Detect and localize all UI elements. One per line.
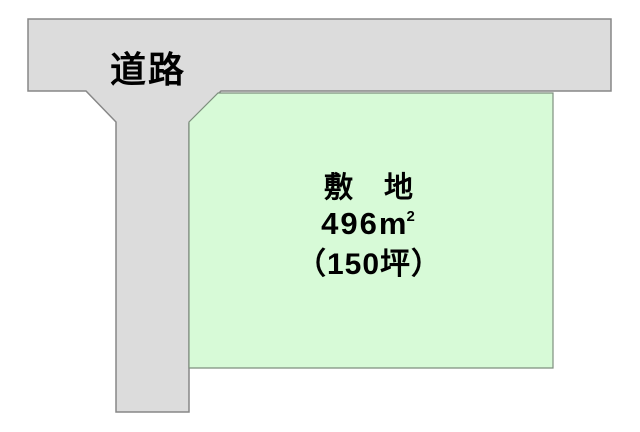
road-label: 道路 [110, 41, 186, 93]
plot-labels: 敷 地 496m2 （150坪） [189, 171, 549, 282]
plot-area-label: 496m2 [189, 206, 549, 247]
plot-area-unit: m [379, 206, 409, 241]
land-plot-diagram: 道路 敷 地 496m2 （150坪） [0, 0, 640, 432]
plot-area-exponent: 2 [406, 199, 414, 234]
plot-area-value: 496 [321, 206, 379, 241]
plot-area-tsubo-label: （150坪） [189, 247, 549, 282]
plot-name-label: 敷 地 [189, 171, 549, 206]
